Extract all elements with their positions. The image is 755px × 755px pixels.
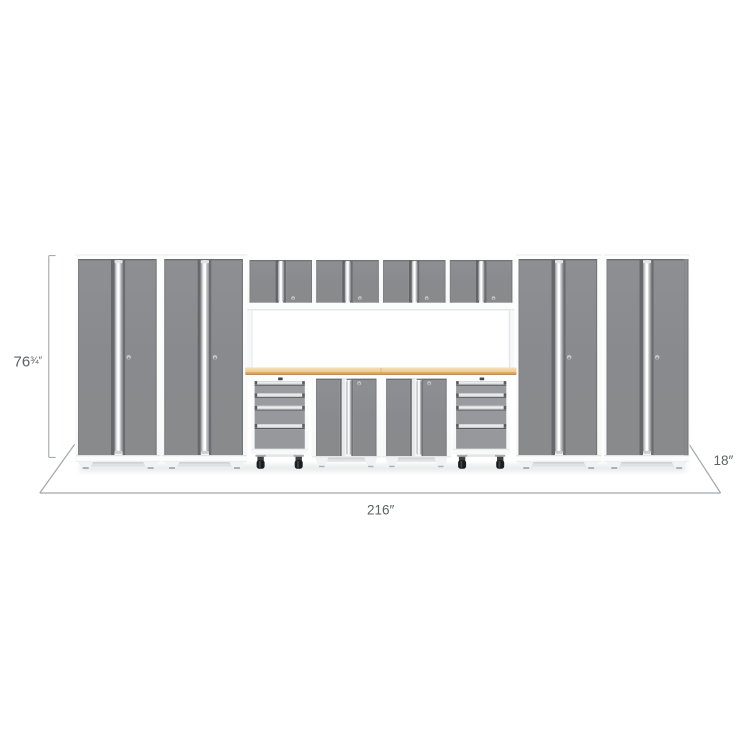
svg-text:18″: 18″ [714,453,734,468]
svg-text:216″: 216″ [367,503,395,518]
